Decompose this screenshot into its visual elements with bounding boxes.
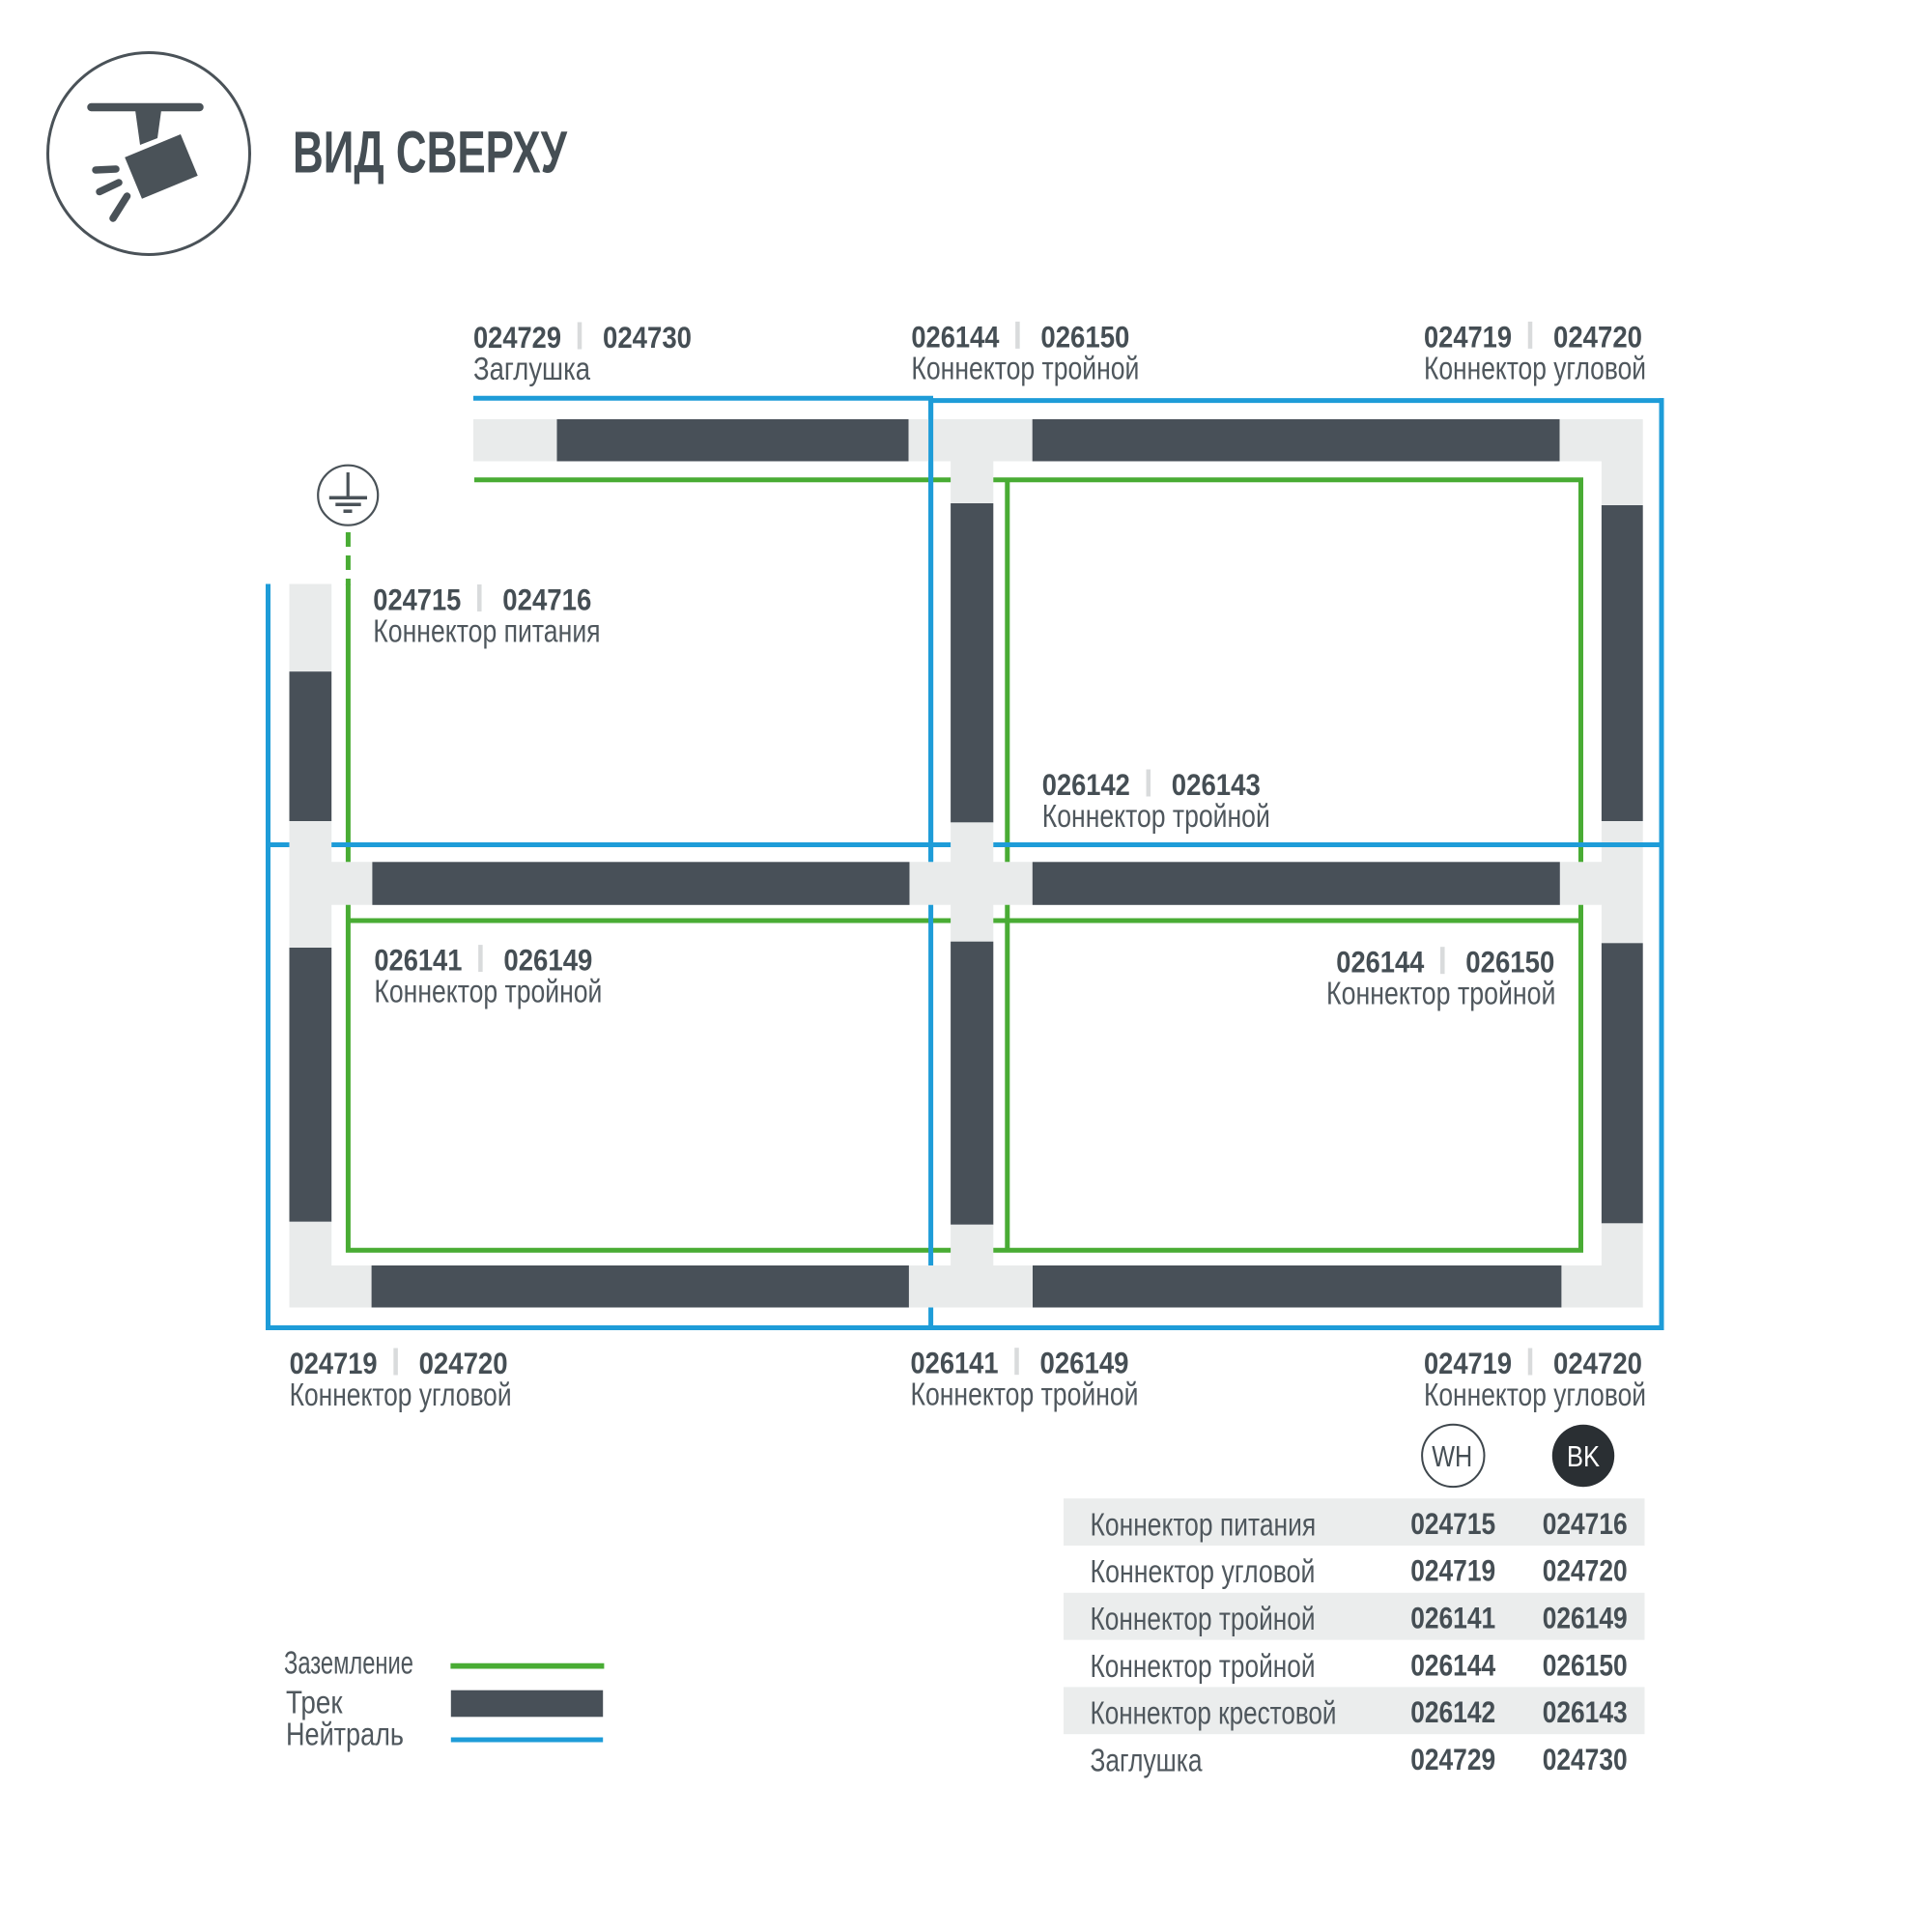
svg-text:024719: 024719 <box>1424 319 1512 354</box>
svg-text:Коннектор угловой: Коннектор угловой <box>290 1378 512 1413</box>
svg-text:026149: 026149 <box>1543 1601 1628 1635</box>
svg-text:Коннектор тройной: Коннектор тройной <box>911 351 1139 386</box>
svg-text:Коннектор тройной: Коннектор тройной <box>1042 799 1270 835</box>
svg-text:026141: 026141 <box>374 943 462 978</box>
svg-text:BK: BK <box>1567 1439 1600 1473</box>
svg-text:Коннектор тройной: Коннектор тройной <box>1091 1602 1316 1637</box>
svg-text:026143: 026143 <box>1543 1694 1628 1729</box>
svg-text:Коннектор угловой: Коннектор угловой <box>1424 351 1646 386</box>
svg-text:026142: 026142 <box>1410 1694 1495 1729</box>
svg-text:Трек: Трек <box>286 1685 343 1720</box>
svg-text:024719: 024719 <box>290 1346 378 1380</box>
svg-text:024716: 024716 <box>502 582 591 617</box>
svg-text:026144: 026144 <box>911 319 999 354</box>
svg-text:024719: 024719 <box>1410 1553 1495 1588</box>
svg-text:024720: 024720 <box>1543 1553 1628 1588</box>
svg-text:024729: 024729 <box>473 320 561 355</box>
svg-text:024729: 024729 <box>1410 1742 1495 1776</box>
svg-text:024715: 024715 <box>1410 1506 1495 1541</box>
svg-text:026142: 026142 <box>1042 767 1130 802</box>
svg-text:024720: 024720 <box>1553 1346 1642 1380</box>
svg-text:Нейтраль: Нейтраль <box>286 1718 404 1753</box>
svg-text:024720: 024720 <box>1553 319 1642 354</box>
svg-text:024719: 024719 <box>1424 1346 1512 1380</box>
svg-text:024716: 024716 <box>1543 1506 1628 1541</box>
svg-text:026141: 026141 <box>1410 1601 1495 1635</box>
svg-text:WH: WH <box>1432 1439 1472 1473</box>
svg-text:026144: 026144 <box>1336 945 1424 980</box>
svg-text:Коннектор тройной: Коннектор тройной <box>1091 1649 1316 1685</box>
svg-text:ВИД СВЕРХУ: ВИД СВЕРХУ <box>293 120 568 185</box>
svg-text:024720: 024720 <box>419 1346 508 1380</box>
svg-text:026150: 026150 <box>1465 945 1554 980</box>
svg-text:024730: 024730 <box>1543 1742 1628 1776</box>
svg-text:Коннектор тройной: Коннектор тройной <box>1326 977 1556 1012</box>
svg-text:026144: 026144 <box>1410 1647 1495 1682</box>
svg-text:Заземление: Заземление <box>284 1645 413 1681</box>
svg-text:026149: 026149 <box>503 943 592 978</box>
svg-text:026149: 026149 <box>1040 1346 1129 1380</box>
svg-text:Коннектор питания: Коннектор питания <box>1091 1507 1317 1543</box>
svg-text:026143: 026143 <box>1172 767 1261 802</box>
svg-text:Коннектор тройной: Коннектор тройной <box>374 975 602 1010</box>
svg-text:Коннектор угловой: Коннектор угловой <box>1424 1378 1646 1413</box>
svg-text:Заглушка: Заглушка <box>1091 1743 1203 1778</box>
svg-text:024730: 024730 <box>603 320 692 355</box>
svg-text:024715: 024715 <box>373 582 461 617</box>
svg-text:Коннектор крестовой: Коннектор крестовой <box>1091 1696 1337 1732</box>
svg-text:026141: 026141 <box>911 1346 999 1380</box>
svg-text:Коннектор питания: Коннектор питания <box>373 614 600 650</box>
svg-text:Заглушка: Заглушка <box>473 352 590 387</box>
svg-text:Коннектор угловой: Коннектор угловой <box>1091 1554 1316 1590</box>
svg-text:026150: 026150 <box>1543 1647 1628 1682</box>
svg-text:Коннектор тройной: Коннектор тройной <box>911 1378 1139 1413</box>
svg-text:026150: 026150 <box>1040 319 1129 354</box>
